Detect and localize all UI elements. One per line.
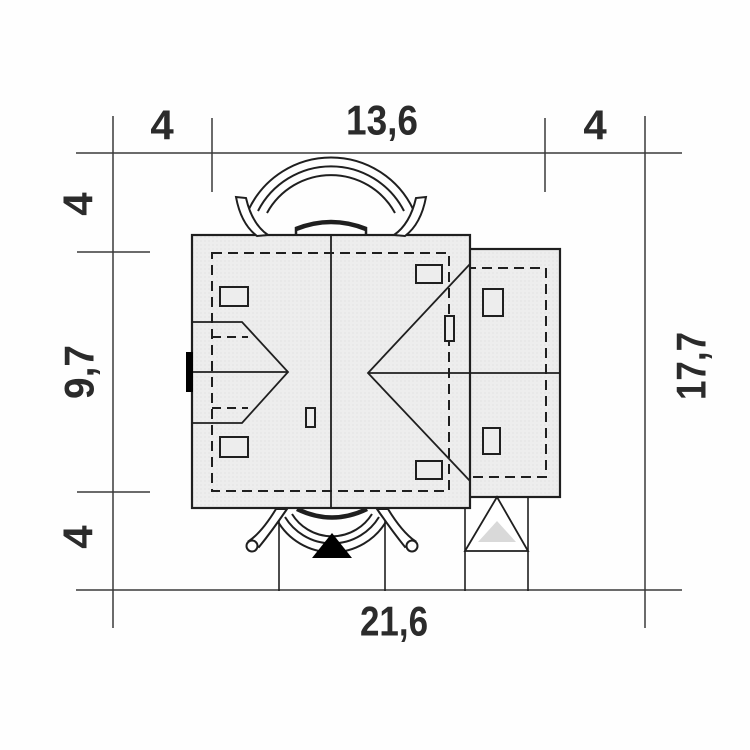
bottom-entrance [247, 509, 418, 558]
step-arc [249, 157, 413, 209]
top-entrance-step-arcs [249, 157, 413, 213]
dim-left-top-margin: 4 [55, 192, 102, 216]
dim-top-right-margin: 4 [583, 102, 607, 149]
chimney [220, 437, 248, 457]
chimney [483, 428, 500, 454]
dim-top-left-margin: 4 [150, 102, 174, 149]
chimney [306, 408, 315, 427]
wing-wall-post-left [247, 541, 258, 552]
chimney [220, 287, 248, 306]
chimney [416, 461, 442, 479]
chimney [483, 289, 503, 316]
dim-building-width: 13,6 [346, 97, 418, 144]
dim-total-depth: 17,7 [668, 332, 715, 400]
chimney [445, 316, 454, 341]
entry-arrow-icon [312, 533, 352, 558]
chimney [416, 265, 442, 283]
site-plan-page: 4 13,6 4 4 9,7 4 17,7 21,6 [0, 0, 750, 750]
side-door-marker [186, 352, 193, 392]
dim-total-width: 21,6 [360, 598, 428, 645]
wing-wall-post-right [407, 541, 418, 552]
bottom-door-canopy-arc [297, 509, 367, 518]
top-entrance [236, 157, 426, 236]
site-plan-drawing: 4 13,6 4 4 9,7 4 17,7 21,6 [0, 0, 750, 750]
garage-entrance [465, 497, 528, 551]
dim-left-bottom-margin: 4 [55, 525, 102, 549]
dim-building-depth: 9,7 [56, 345, 103, 399]
top-door-canopy-arc [296, 222, 366, 229]
